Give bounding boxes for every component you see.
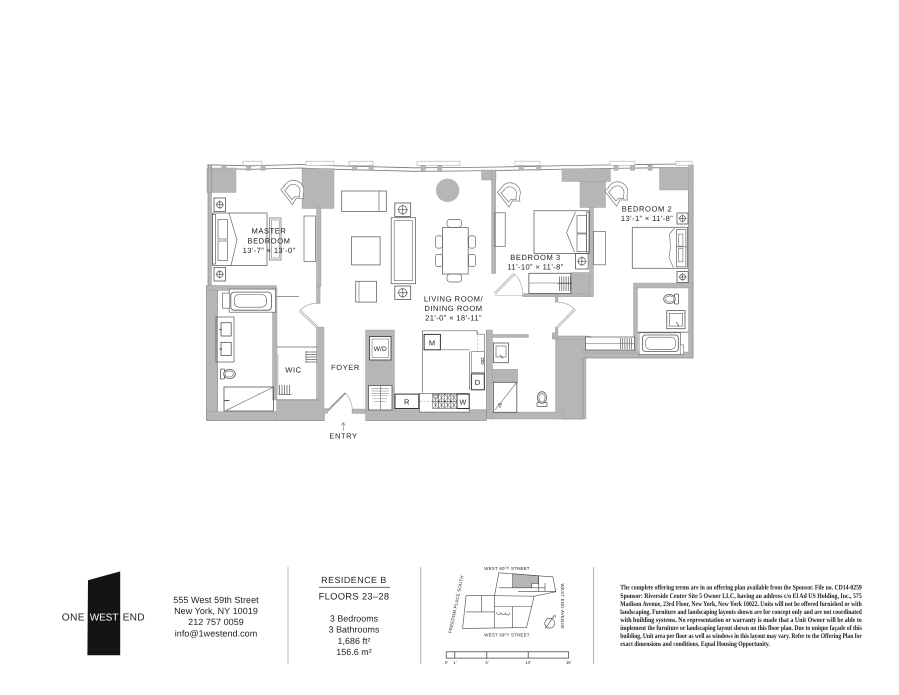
- svg-text:BEDROOM: BEDROOM: [247, 236, 290, 245]
- svg-text:RESIDENCE B: RESIDENCE B: [321, 575, 387, 585]
- svg-text:Sponsor: Riverside Center Site: Sponsor: Riverside Center Site 5 Owner L…: [620, 592, 862, 600]
- svg-text:M: M: [429, 339, 436, 348]
- svg-text:Madison Avenue, 23rd Floor, Ne: Madison Avenue, 23rd Floor, New York, Ne…: [620, 600, 862, 608]
- svg-text:New York, NY 10019: New York, NY 10019: [174, 606, 258, 616]
- svg-text:landscaping. Furniture and lan: landscaping. Furniture and landscaping l…: [620, 608, 862, 616]
- svg-text:D: D: [475, 378, 481, 387]
- svg-text:0’: 0’: [445, 660, 448, 665]
- svg-text:FOYER: FOYER: [331, 363, 360, 372]
- svg-text:DINING ROOM: DINING ROOM: [424, 304, 482, 313]
- svg-text:WEST END AVENUE: WEST END AVENUE: [560, 584, 565, 630]
- svg-text:LIVING ROOM/: LIVING ROOM/: [424, 295, 484, 304]
- svg-text:with building systems. No repr: with building systems. No representation…: [620, 616, 862, 624]
- svg-text:N: N: [553, 614, 556, 619]
- svg-text:156.6 m²: 156.6 m²: [336, 647, 371, 657]
- svg-text:FLOORS 23–28: FLOORS 23–28: [319, 591, 390, 602]
- svg-text:3 Bedrooms: 3 Bedrooms: [330, 613, 379, 623]
- svg-text:exact dimensions and condition: exact dimensions and conditions. Equal H…: [620, 640, 770, 648]
- svg-text:13’-7” × 13’-0”: 13’-7” × 13’-0”: [243, 246, 296, 255]
- svg-text:BEDROOM 3: BEDROOM 3: [510, 253, 561, 262]
- svg-text:BEDROOM 2: BEDROOM 2: [622, 205, 673, 214]
- svg-text:15’: 15’: [566, 660, 572, 665]
- svg-text:R: R: [404, 398, 410, 407]
- svg-text:555 West 59th Street: 555 West 59th Street: [173, 595, 259, 605]
- svg-text:building, Unit area per floor: building, Unit area per floor as well as…: [620, 632, 862, 640]
- svg-text:The complete offering terms ar: The complete offering terms are in an of…: [620, 584, 862, 592]
- svg-text:1,686 ft²: 1,686 ft²: [337, 636, 370, 646]
- svg-text:ENTRY: ENTRY: [329, 431, 357, 440]
- svg-text:END: END: [123, 613, 145, 624]
- svg-text:5’: 5’: [485, 660, 488, 665]
- svg-text:21’-0” × 18’-11”: 21’-0” × 18’-11”: [425, 314, 482, 323]
- svg-text:MASTER: MASTER: [252, 227, 287, 236]
- svg-text:WIC: WIC: [285, 366, 301, 375]
- svg-text:212 757 0059: 212 757 0059: [188, 617, 244, 627]
- svg-text:implement the furniture or lan: implement the furniture or landscaping l…: [620, 624, 862, 632]
- svg-text:ONE: ONE: [62, 613, 85, 624]
- svg-text:13’-1” × 11’-8”: 13’-1” × 11’-8”: [621, 214, 673, 223]
- svg-text:info@1westend.com: info@1westend.com: [175, 628, 258, 638]
- svg-text:WEST: WEST: [90, 613, 119, 624]
- svg-text:11’-10” × 11’-8”: 11’-10” × 11’-8”: [507, 262, 563, 271]
- svg-text:W/D: W/D: [374, 346, 387, 353]
- svg-text:1’: 1’: [453, 660, 456, 665]
- svg-text:W: W: [460, 398, 467, 407]
- svg-text:3 Bathrooms: 3 Bathrooms: [329, 625, 380, 635]
- svg-text:10’: 10’: [526, 660, 532, 665]
